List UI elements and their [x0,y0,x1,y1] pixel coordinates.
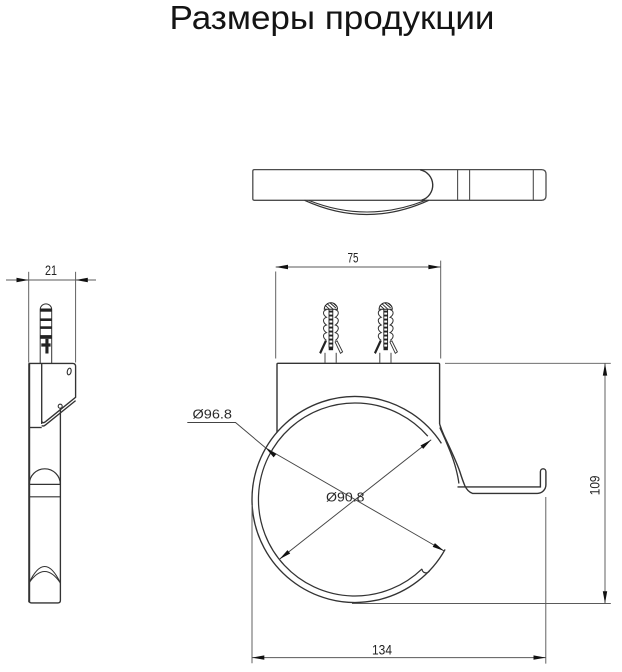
svg-text:75: 75 [348,251,359,266]
svg-text:134: 134 [372,643,392,658]
svg-text:Ø96.8: Ø96.8 [193,407,233,422]
svg-text:109: 109 [588,476,603,496]
svg-text:21: 21 [45,263,57,278]
svg-text:Размеры продукции: Размеры продукции [170,0,495,37]
svg-text:Ø90.8: Ø90.8 [326,490,365,505]
